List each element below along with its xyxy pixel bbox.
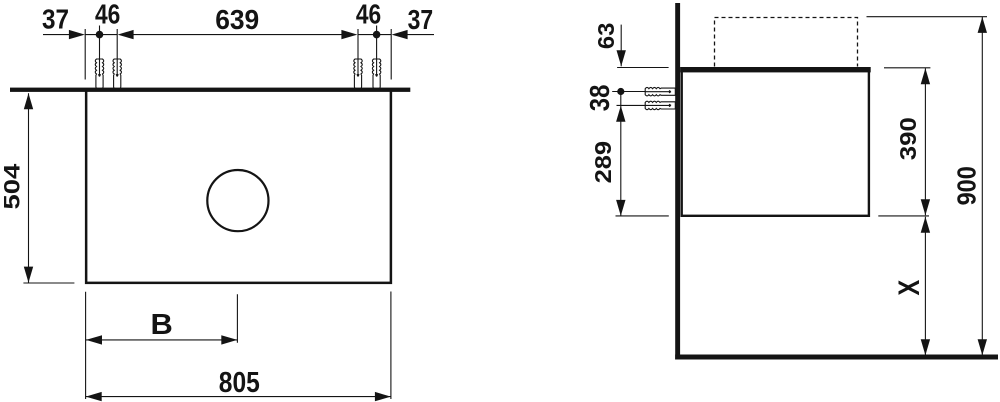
svg-text:38: 38 [584,85,615,112]
svg-text:900: 900 [951,166,981,205]
svg-text:639: 639 [215,4,259,35]
svg-text:46: 46 [95,0,120,29]
svg-text:X: X [893,280,926,296]
svg-text:46: 46 [356,0,381,29]
svg-text:37: 37 [408,4,434,35]
svg-text:B: B [151,309,173,341]
svg-text:390: 390 [895,117,921,160]
svg-text:37: 37 [42,4,69,35]
svg-text:504: 504 [0,163,24,209]
svg-text:63: 63 [593,23,619,50]
svg-text:805: 805 [219,367,260,399]
svg-text:289: 289 [590,141,616,184]
